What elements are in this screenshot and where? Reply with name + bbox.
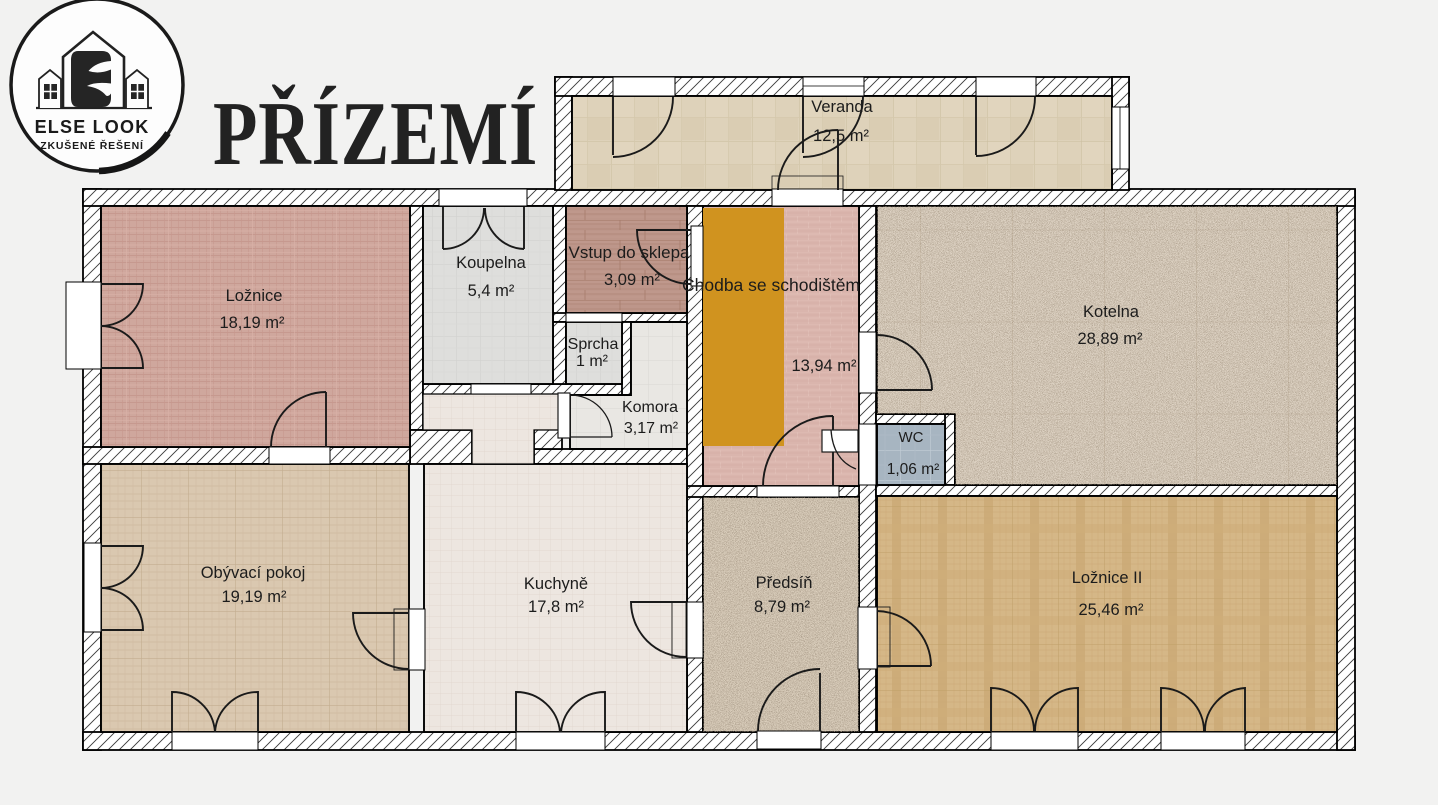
svg-text:17,8 m²: 17,8 m²: [528, 598, 584, 616]
svg-text:WC: WC: [899, 429, 924, 446]
svg-text:1 m²: 1 m²: [576, 353, 609, 370]
svg-text:19,19 m²: 19,19 m²: [221, 588, 287, 606]
svg-text:Vstup do sklepa: Vstup do sklepa: [569, 243, 691, 262]
svg-text:Kotelna: Kotelna: [1083, 303, 1140, 321]
svg-text:Sprcha: Sprcha: [568, 336, 619, 353]
svg-text:13,94 m²: 13,94 m²: [791, 357, 857, 375]
svg-text:Komora: Komora: [622, 399, 678, 416]
svg-text:3,09 m²: 3,09 m²: [604, 271, 660, 289]
svg-text:Chodba se schodištěm: Chodba se schodištěm: [682, 275, 860, 295]
svg-text:3,17 m²: 3,17 m²: [624, 420, 679, 437]
svg-text:Ložnice: Ložnice: [226, 287, 283, 305]
svg-text:ELSE LOOK: ELSE LOOK: [35, 117, 150, 137]
svg-text:Koupelna: Koupelna: [456, 254, 527, 272]
svg-text:Obývací pokoj: Obývací pokoj: [201, 564, 306, 582]
svg-text:Ložnice II: Ložnice II: [1072, 569, 1143, 587]
svg-text:Předsíň: Předsíň: [756, 574, 813, 592]
svg-text:Veranda: Veranda: [811, 98, 873, 116]
svg-text:PŘÍZEMÍ: PŘÍZEMÍ: [213, 83, 538, 183]
svg-text:ZKUŠENÉ ŘEŠENÍ: ZKUŠENÉ ŘEŠENÍ: [40, 139, 144, 152]
svg-text:25,46 m²: 25,46 m²: [1078, 601, 1144, 619]
svg-text:12,5 m²: 12,5 m²: [813, 127, 869, 145]
svg-text:28,89 m²: 28,89 m²: [1077, 330, 1143, 348]
svg-text:8,79 m²: 8,79 m²: [754, 598, 810, 616]
svg-text:18,19 m²: 18,19 m²: [219, 314, 285, 332]
svg-text:5,4 m²: 5,4 m²: [468, 282, 515, 300]
svg-text:1,06 m²: 1,06 m²: [887, 461, 940, 478]
svg-text:Kuchyně: Kuchyně: [524, 575, 588, 593]
